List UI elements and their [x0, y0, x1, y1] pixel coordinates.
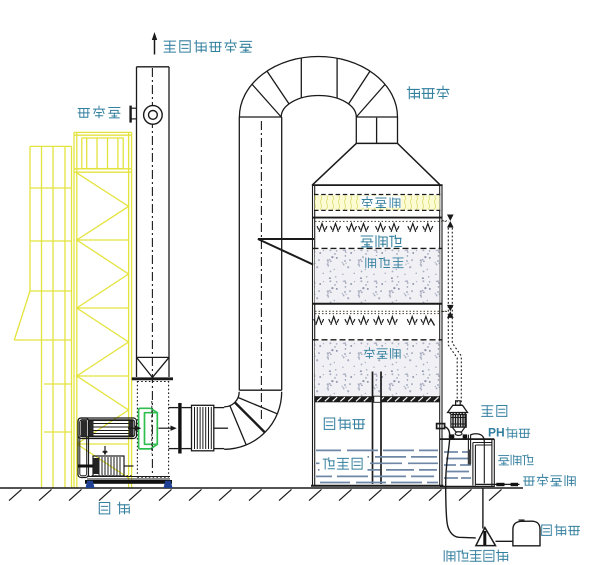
svg-text:PH: PH: [488, 426, 505, 440]
